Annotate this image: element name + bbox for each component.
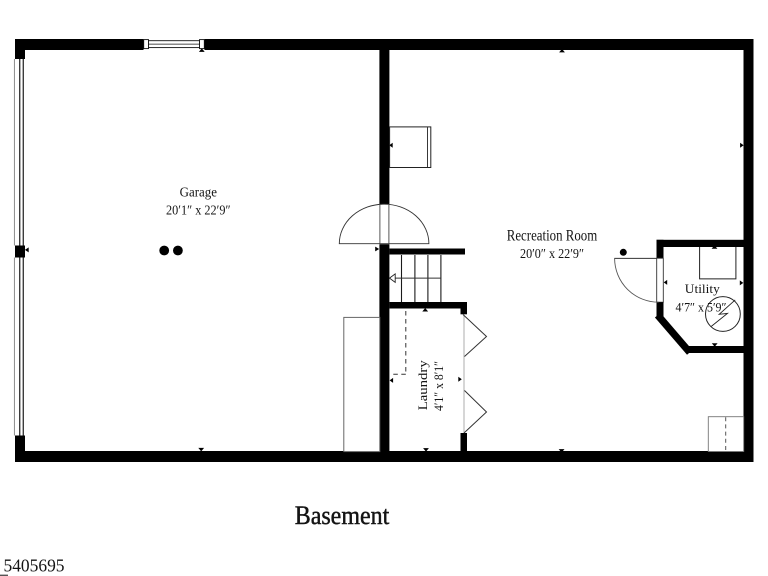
svg-text:4′1″ x 8′1″: 4′1″ x 8′1″ <box>432 361 446 411</box>
svg-text:Utility: Utility <box>685 282 721 296</box>
svg-text:Recreation Room: Recreation Room <box>507 227 598 244</box>
svg-text:4′7″ x 5′9″: 4′7″ x 5′9″ <box>676 301 727 315</box>
svg-text:Basement: Basement <box>295 501 390 530</box>
svg-text:20′1″ x 22′9″: 20′1″ x 22′9″ <box>166 203 231 218</box>
svg-text:Laundry: Laundry <box>415 360 430 411</box>
svg-text:5405695: 5405695 <box>4 556 65 576</box>
svg-text:Garage: Garage <box>180 184 217 199</box>
svg-text:20′0″ x 22′9″: 20′0″ x 22′9″ <box>520 246 584 261</box>
